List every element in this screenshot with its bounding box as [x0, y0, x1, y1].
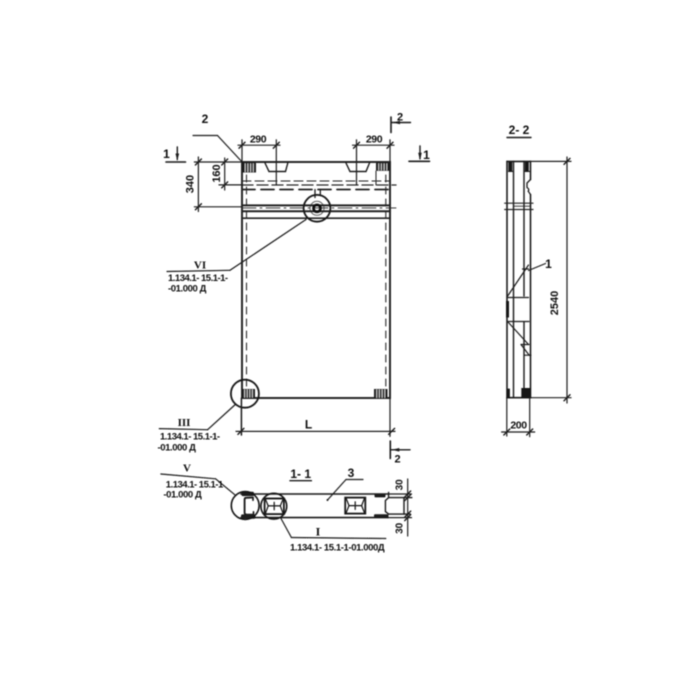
svg-text:2: 2	[397, 112, 403, 124]
svg-text:1- 1: 1- 1	[290, 467, 311, 481]
svg-text:1.134.1- 15.1-1-: 1.134.1- 15.1-1-	[168, 273, 228, 284]
svg-text:VI: VI	[194, 260, 206, 272]
svg-text:2- 2: 2- 2	[509, 123, 530, 137]
svg-text:-01.000 Д: -01.000 Д	[168, 284, 207, 295]
svg-text:30: 30	[395, 522, 406, 534]
svg-text:200: 200	[510, 420, 527, 432]
svg-text:-01.000 Д: -01.000 Д	[163, 490, 202, 501]
svg-text:2540: 2540	[549, 291, 561, 315]
svg-text:-01.000 Д: -01.000 Д	[158, 443, 197, 454]
svg-text:1.134.1- 15.1-1-01.000Д: 1.134.1- 15.1-1-01.000Д	[290, 543, 385, 554]
svg-text:1: 1	[163, 147, 170, 161]
svg-text:290: 290	[250, 134, 267, 146]
svg-text:L: L	[305, 418, 312, 432]
svg-text:3: 3	[348, 466, 355, 480]
svg-text:1: 1	[545, 257, 552, 271]
svg-text:2: 2	[394, 454, 400, 466]
svg-text:2: 2	[202, 112, 209, 126]
svg-text:290: 290	[366, 134, 383, 146]
svg-text:30: 30	[395, 479, 406, 491]
svg-text:160: 160	[211, 164, 223, 182]
svg-text:1: 1	[423, 148, 430, 162]
svg-text:I: I	[316, 525, 321, 539]
svg-text:V: V	[183, 463, 191, 475]
svg-text:1.134.1- 15.1-1-: 1.134.1- 15.1-1-	[160, 432, 220, 443]
svg-text:340: 340	[185, 175, 197, 193]
svg-text:III: III	[178, 417, 191, 429]
